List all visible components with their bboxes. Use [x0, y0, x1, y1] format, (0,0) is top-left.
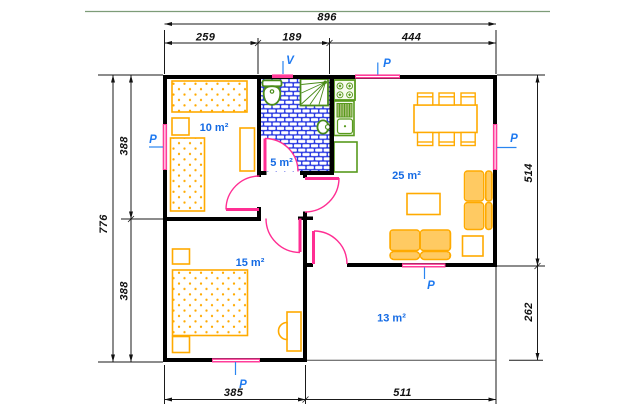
svg-text:189: 189: [282, 32, 302, 44]
svg-text:V: V: [286, 55, 295, 67]
svg-text:262: 262: [523, 302, 535, 322]
svg-text:5 m²: 5 m²: [270, 157, 293, 169]
svg-text:P: P: [239, 379, 247, 391]
svg-text:P: P: [149, 134, 157, 146]
svg-text:25 m²: 25 m²: [392, 170, 421, 182]
svg-text:514: 514: [523, 163, 535, 182]
svg-text:10 m²: 10 m²: [200, 122, 229, 134]
svg-text:P: P: [510, 133, 518, 145]
svg-text:776: 776: [98, 214, 110, 234]
svg-text:259: 259: [195, 32, 216, 44]
svg-text:15 m²: 15 m²: [236, 257, 265, 269]
svg-text:511: 511: [393, 387, 411, 399]
svg-text:P: P: [427, 280, 435, 292]
svg-text:13 m²: 13 m²: [377, 313, 406, 325]
svg-text:444: 444: [401, 32, 421, 44]
svg-text:P: P: [383, 58, 391, 70]
svg-text:896: 896: [317, 12, 337, 24]
svg-text:388: 388: [119, 136, 131, 156]
svg-text:388: 388: [119, 281, 131, 301]
